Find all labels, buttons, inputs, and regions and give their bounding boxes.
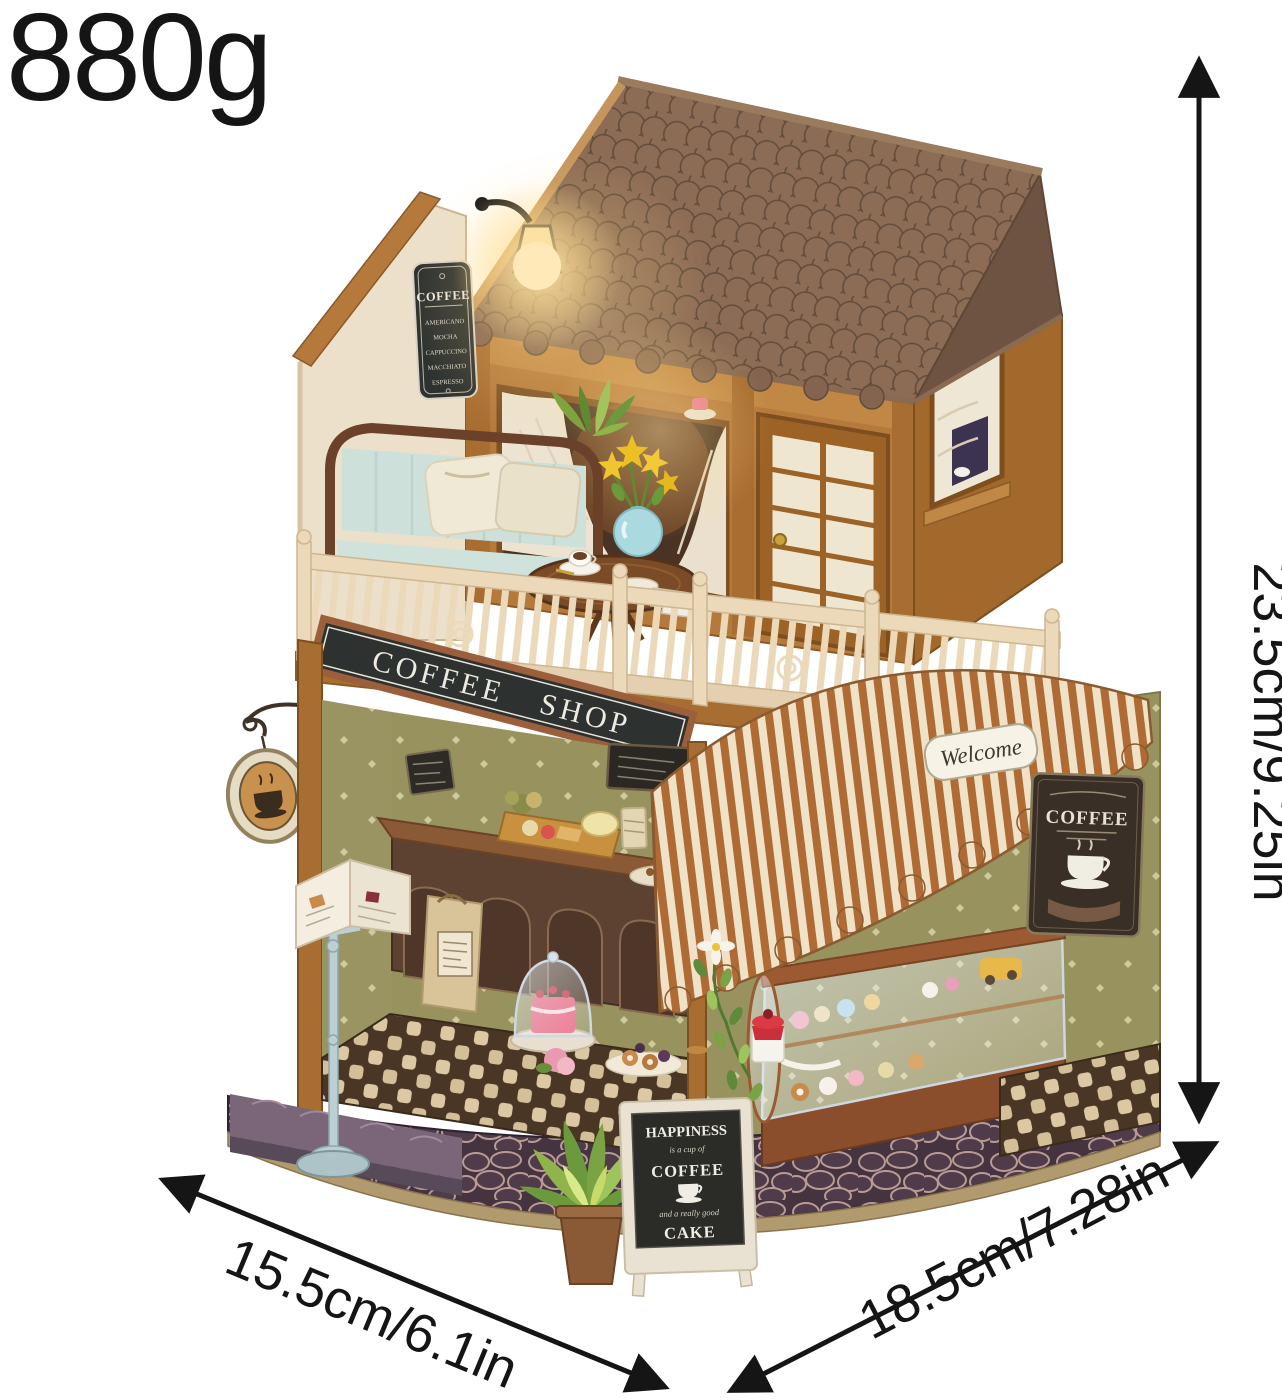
weight-label: 880g: [6, 0, 270, 127]
product-image: COFFEE AMERICANO MOCHA CAPPUCCINO MACCHI…: [0, 0, 1282, 1400]
height-label: 23.5cm/9.25in: [1242, 562, 1282, 901]
teapot: [582, 812, 618, 836]
door-handle: [774, 534, 786, 546]
mini-chalkboard: [405, 749, 454, 795]
aframe-line-top: HAPPINESS: [645, 1123, 727, 1142]
aframe-line-mid: COFFEE: [651, 1160, 725, 1182]
aframe-script1: is a cup of: [669, 1143, 706, 1154]
aframe-line-bottom: CAKE: [664, 1222, 716, 1243]
togo-cup: [621, 808, 646, 849]
sofa-pillow: [495, 462, 582, 538]
wall-coffee-sign: COFFEE: [1027, 773, 1145, 937]
wall-sign-text: COFFEE: [1045, 807, 1129, 831]
dollhouse-scene: COFFEE AMERICANO MOCHA CAPPUCCINO MACCHI…: [0, 0, 1282, 1400]
aframe-sign: HAPPINESS is a cup of COFFEE and a reall…: [619, 1098, 758, 1297]
aframe-script2: and a really good: [659, 1207, 720, 1219]
shopping-bag: [422, 895, 482, 1012]
